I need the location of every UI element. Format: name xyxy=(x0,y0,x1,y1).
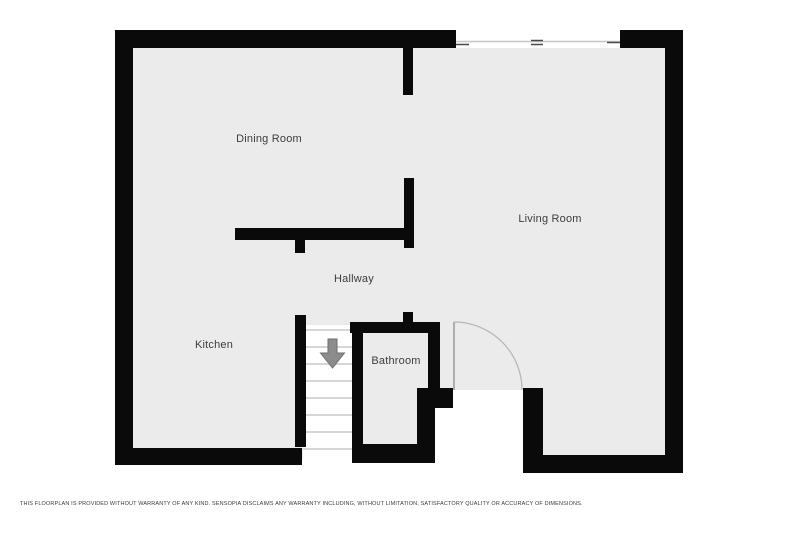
wall-bathroom-top-wall xyxy=(350,322,440,333)
room-label-living-room: Living Room xyxy=(518,213,581,225)
wall-bathroom-right-wall xyxy=(428,322,440,390)
wall-bathroom-bottom-wall xyxy=(352,444,435,463)
floorplan-canvas xyxy=(0,0,800,533)
wall-hallway-stub-down xyxy=(295,240,305,253)
room-label-kitchen: Kitchen xyxy=(195,339,233,351)
wall-exterior-bottom-kitchen xyxy=(115,448,302,465)
room-label-hallway: Hallway xyxy=(334,273,374,285)
wall-living-entry-side xyxy=(523,388,543,473)
wall-bathroom-top-stub xyxy=(403,312,413,322)
wall-hallway-horizontal xyxy=(235,228,413,240)
wall-exterior-bottom-living xyxy=(523,455,683,473)
floor-main xyxy=(125,40,673,460)
room-label-dining-room: Dining Room xyxy=(236,133,302,145)
wall-entry-hinge-stub xyxy=(417,388,453,408)
wall-exterior-left xyxy=(115,30,133,465)
wall-exterior-top-left xyxy=(115,30,456,48)
disclaimer-text: THIS FLOORPLAN IS PROVIDED WITHOUT WARRA… xyxy=(20,501,583,507)
wall-stairs-right-wall xyxy=(352,322,363,463)
wall-stairs-left-wall xyxy=(295,315,306,447)
wall-dining-living-stub-top xyxy=(403,48,413,95)
floorplan-page: Dining Room Living Room Hallway Kitchen … xyxy=(0,0,800,533)
wall-exterior-right xyxy=(665,30,683,473)
room-label-bathroom: Bathroom xyxy=(371,355,420,367)
